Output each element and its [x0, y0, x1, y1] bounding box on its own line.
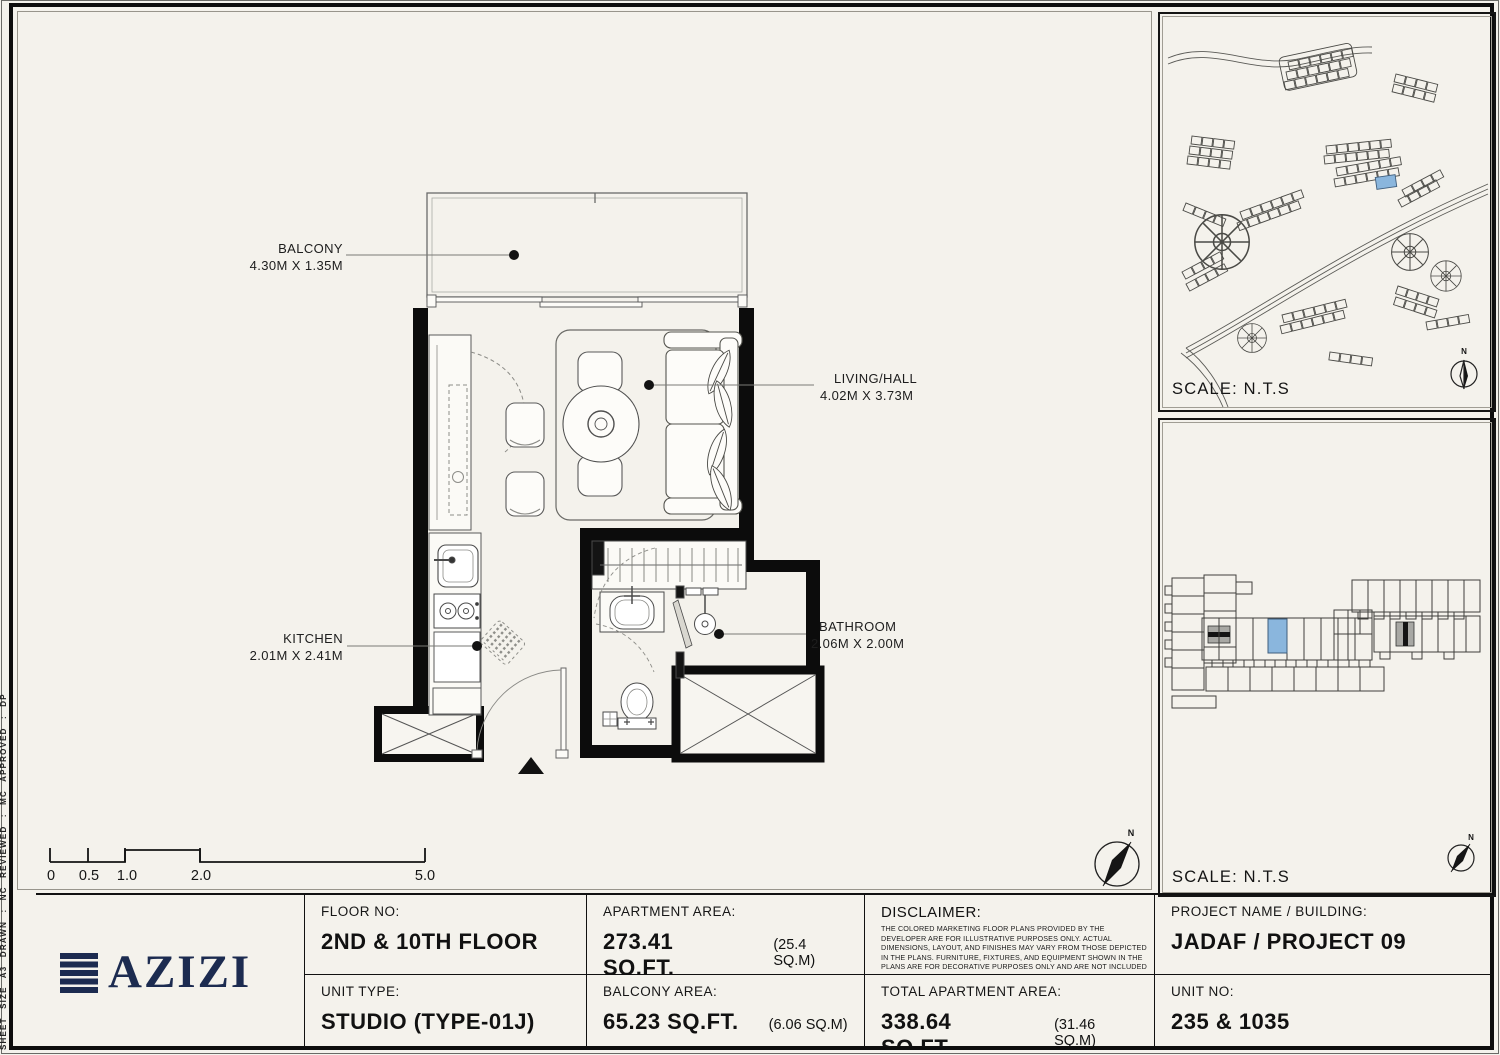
- project-name-label: PROJECT NAME / BUILDING:: [1171, 904, 1476, 919]
- shaft-bottom-left: [378, 710, 480, 758]
- apartment-area-cell: APARTMENT AREA: 273.41 SQ.FT. (25.4 SQ.M…: [586, 895, 864, 974]
- bathroom-dims: 2.06M X 2.00M: [811, 635, 904, 652]
- floor-no-value: 2ND & 10TH FLOOR: [321, 929, 538, 955]
- site-highlighted-plot: [1375, 175, 1396, 190]
- balcony-dims: 4.30M X 1.35M: [175, 257, 343, 274]
- scale-tick-05: 0.5: [79, 868, 99, 884]
- unit-type-cell: UNIT TYPE: STUDIO (TYPE-01J): [304, 974, 586, 1047]
- building-map: [1165, 575, 1480, 708]
- north-label-building: N: [1468, 833, 1474, 842]
- north-compass-site: [1451, 360, 1477, 389]
- scale-tick-1: 1.0: [117, 868, 137, 884]
- kitchen-name: KITCHEN: [175, 630, 343, 647]
- balcony-area-metric: (6.06 SQ.M): [769, 1017, 848, 1033]
- kitchen-sink: [434, 545, 478, 587]
- living-dims: 4.02M X 3.73M: [820, 387, 917, 404]
- north-label-main: N: [1128, 828, 1135, 838]
- site-roads: [1168, 47, 1488, 407]
- azizi-logo: AZIZI: [60, 949, 251, 996]
- building-scale-label: SCALE: N.T.S: [1172, 868, 1290, 887]
- kitchen-label: KITCHEN 2.01M X 2.41M: [175, 630, 343, 664]
- scale-bar: [50, 848, 425, 862]
- unit-type-label: UNIT TYPE:: [321, 984, 570, 999]
- scale-tick-5: 5.0: [415, 868, 435, 884]
- scale-tick-0: 0: [47, 868, 55, 884]
- apartment-area-label: APARTMENT AREA:: [603, 904, 848, 919]
- unit-no-label: UNIT NO:: [1171, 984, 1476, 999]
- unit-no-cell: UNIT NO: 235 & 1035: [1154, 974, 1492, 1047]
- stove: [434, 594, 480, 628]
- appliance-hatch: [479, 619, 526, 665]
- title-block: AZIZI FLOOR NO: 2ND & 10TH FLOOR APARTME…: [36, 893, 1492, 1047]
- balcony-outline: [427, 193, 747, 297]
- project-name-cell: PROJECT NAME / BUILDING: JADAF / PROJECT…: [1154, 895, 1492, 974]
- apartment-area-value: 273.41 SQ.FT.: [603, 929, 743, 974]
- entry-arrow: [518, 757, 544, 774]
- unit-type-value: STUDIO (TYPE-01J): [321, 1009, 535, 1035]
- shower: [673, 586, 718, 678]
- bathroom-label: BATHROOM 2.06M X 2.00M: [811, 618, 904, 652]
- site-scale-label: SCALE: N.T.S: [1172, 380, 1290, 399]
- logo-cell: AZIZI: [36, 895, 304, 1047]
- shaft-bottom-right: [676, 670, 820, 758]
- bathroom-name: BATHROOM: [811, 618, 904, 635]
- dining-table: [563, 386, 639, 462]
- living-label: LIVING/HALL 4.02M X 3.73M: [820, 370, 917, 404]
- building-highlighted-unit: [1268, 619, 1287, 653]
- disclaimer-label: DISCLAIMER:: [881, 904, 1138, 921]
- apartment-area-metric: (25.4 SQ.M): [773, 937, 848, 969]
- balcony-name: BALCONY: [175, 240, 343, 257]
- balcony-area-label: BALCONY AREA:: [603, 984, 848, 999]
- site-map: [1168, 43, 1488, 407]
- sheet-margin-note: SHEET SIZE A3 DRAWN : NC REVIEWED : MC A…: [0, 766, 11, 1050]
- scale-tick-2: 2.0: [191, 868, 211, 884]
- kitchen-worktop: [434, 632, 480, 682]
- balcony-area-value: 65.23 SQ.FT.: [603, 1009, 739, 1035]
- north-label-site: N: [1461, 347, 1467, 356]
- disclaimer-cell: DISCLAIMER: THE COLORED MARKETING FLOOR …: [864, 895, 1154, 974]
- total-area-value: 338.64 SQ.FT.: [881, 1009, 1024, 1047]
- entry-door: [472, 668, 568, 758]
- total-area-cell: TOTAL APARTMENT AREA: 338.64 SQ.FT. (31.…: [864, 974, 1154, 1047]
- floor-no-label: FLOOR NO:: [321, 904, 570, 919]
- project-name-value: JADAF / PROJECT 09: [1171, 929, 1406, 955]
- north-compass-building: [1448, 844, 1474, 872]
- balcony-area-cell: BALCONY AREA: 65.23 SQ.FT. (6.06 SQ.M): [586, 974, 864, 1047]
- floorplan-sheet: SHEET SIZE A3 DRAWN : NC REVIEWED : MC A…: [0, 0, 1500, 1055]
- bathroom-sink: [600, 586, 664, 632]
- north-compass-main: [1095, 842, 1139, 886]
- toilet: [603, 683, 656, 729]
- wardrobe: [592, 541, 746, 589]
- total-area-metric: (31.46 SQ.M): [1054, 1017, 1138, 1047]
- living-name: LIVING/HALL: [820, 370, 917, 387]
- kitchen-dims: 2.01M X 2.41M: [175, 647, 343, 664]
- azizi-logo-bars-icon: [60, 953, 98, 993]
- balcony-label: BALCONY 4.30M X 1.35M: [175, 240, 343, 274]
- unit-no-value: 235 & 1035: [1171, 1009, 1290, 1035]
- total-area-label: TOTAL APARTMENT AREA:: [881, 984, 1138, 999]
- azizi-logo-text: AZIZI: [108, 949, 251, 996]
- disclaimer-body: THE COLORED MARKETING FLOOR PLANS PROVID…: [881, 924, 1149, 974]
- floor-no-cell: FLOOR NO: 2ND & 10TH FLOOR: [304, 895, 586, 974]
